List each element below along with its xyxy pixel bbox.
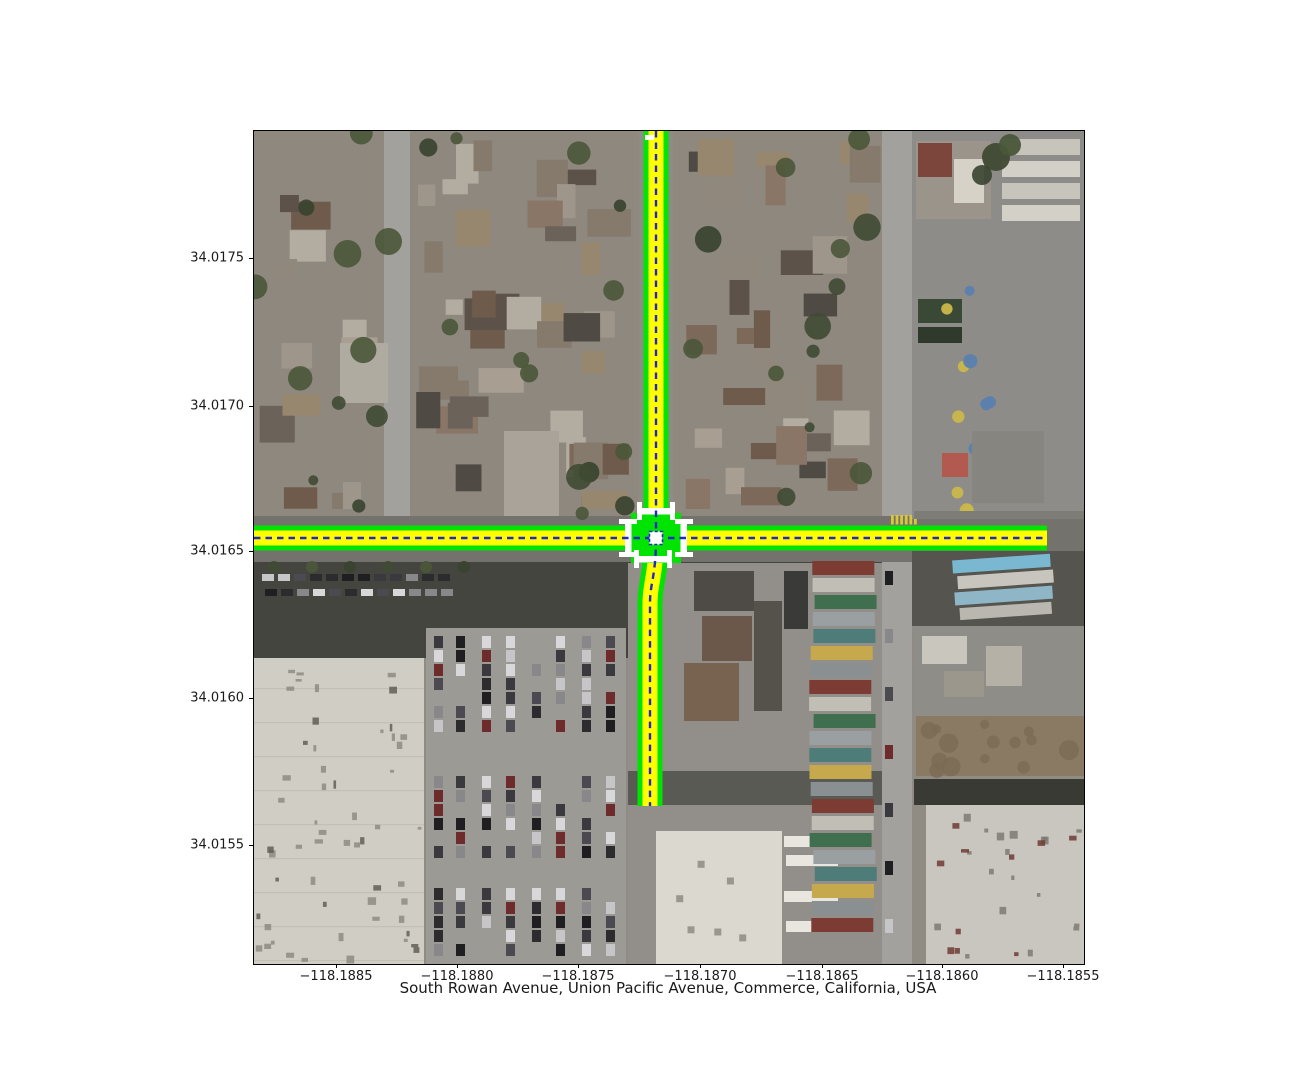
x-tick-label: −118.1885 [300, 969, 373, 984]
intersection-center-node [650, 532, 663, 545]
x-tick-label: −118.1860 [906, 969, 979, 984]
x-tick-label: −118.1880 [421, 969, 494, 984]
x-tick-label: −118.1855 [1027, 969, 1100, 984]
y-tick-label: 34.0165 [190, 544, 244, 559]
figure: South Rowan Avenue, Union Pacific Avenue… [0, 0, 1302, 1080]
scenery-industrial [254, 551, 1084, 964]
aerial-map [254, 131, 1084, 964]
x-tick-label: −118.1865 [786, 969, 859, 984]
y-tick-label: 34.0160 [190, 691, 244, 706]
x-tick-label: −118.1870 [664, 969, 737, 984]
x-tick-label: −118.1875 [542, 969, 615, 984]
scenery-school [912, 131, 1084, 519]
map-plot-area [253, 130, 1085, 965]
y-tick-label: 34.0170 [190, 399, 244, 414]
y-tick-label: 34.0175 [190, 251, 244, 266]
y-tick-label: 34.0155 [190, 838, 244, 853]
